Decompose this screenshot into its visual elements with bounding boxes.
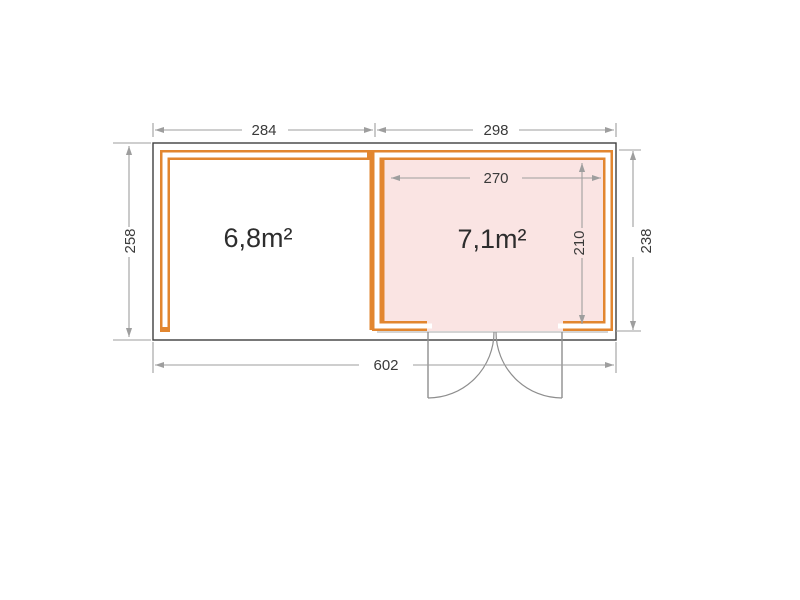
right-room-area-label: 7,1m² — [457, 224, 526, 254]
dim-label-top-left: 284 — [251, 122, 276, 139]
dim-label-total-width: 602 — [373, 357, 398, 374]
dim-label-inner-width: 270 — [483, 170, 508, 187]
dim-label-left: 258 — [122, 228, 139, 253]
left-room-area-label: 6,8m² — [223, 223, 292, 253]
dim-label-inner-height: 210 — [571, 230, 588, 255]
dim-label-top-right: 298 — [483, 122, 508, 139]
floor-plan-page: 284 298 258 238 270 210 602 6,8m² 7,1m² — [0, 0, 800, 600]
dim-label-right: 238 — [638, 228, 655, 253]
floor-plan: 284 298 258 238 270 210 602 6,8m² 7,1m² — [0, 0, 800, 600]
